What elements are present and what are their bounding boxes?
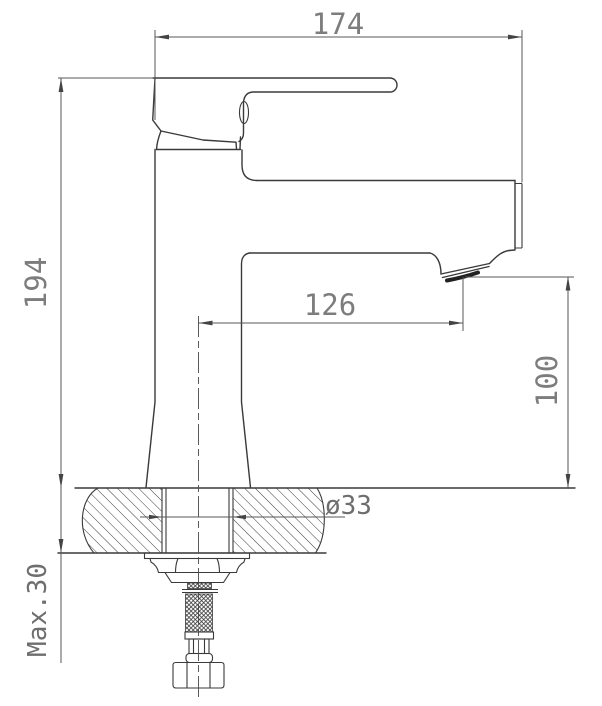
- technical-drawing-canvas: 174 194 Max.30 126 100 ø33: [0, 0, 602, 706]
- washer-plate: [145, 553, 250, 559]
- dim-label-hole-diameter: ø33: [325, 491, 372, 521]
- dim-overall-width: 174: [155, 7, 522, 183]
- hose-tube: [189, 639, 209, 654]
- dim-label-spout-reach: 126: [304, 288, 356, 322]
- dim-outlet-height: 100: [465, 277, 574, 489]
- dim-spout-reach: 126: [199, 277, 464, 331]
- dim-label-body-height: 194: [19, 257, 53, 309]
- hose-collar: [185, 632, 214, 639]
- hose-ring: [186, 654, 213, 663]
- mounting-nut: [150, 559, 245, 583]
- faucet-outline: [58, 78, 575, 698]
- dim-max-thickness: Max.30: [23, 488, 63, 663]
- faucet-body: [146, 150, 257, 488]
- dim-label-overall-width: 174: [312, 7, 364, 41]
- dim-body-height: 194: [19, 78, 153, 488]
- braided-supply-hose: [182, 583, 218, 663]
- faucet-dimension-drawing: 174 194 Max.30 126 100 ø33: [0, 0, 602, 706]
- crimp-ring: [182, 590, 218, 593]
- dim-label-outlet-height: 100: [530, 355, 564, 407]
- countertop-section: [58, 488, 575, 553]
- spout-end-cap: [509, 181, 522, 251]
- dim-label-max-thickness: Max.30: [23, 563, 53, 657]
- handle-lever: [153, 78, 397, 150]
- mounting-hardware: [145, 553, 250, 688]
- threaded-shank: [162, 488, 233, 553]
- spout: [250, 181, 523, 281]
- aerator: [441, 264, 490, 281]
